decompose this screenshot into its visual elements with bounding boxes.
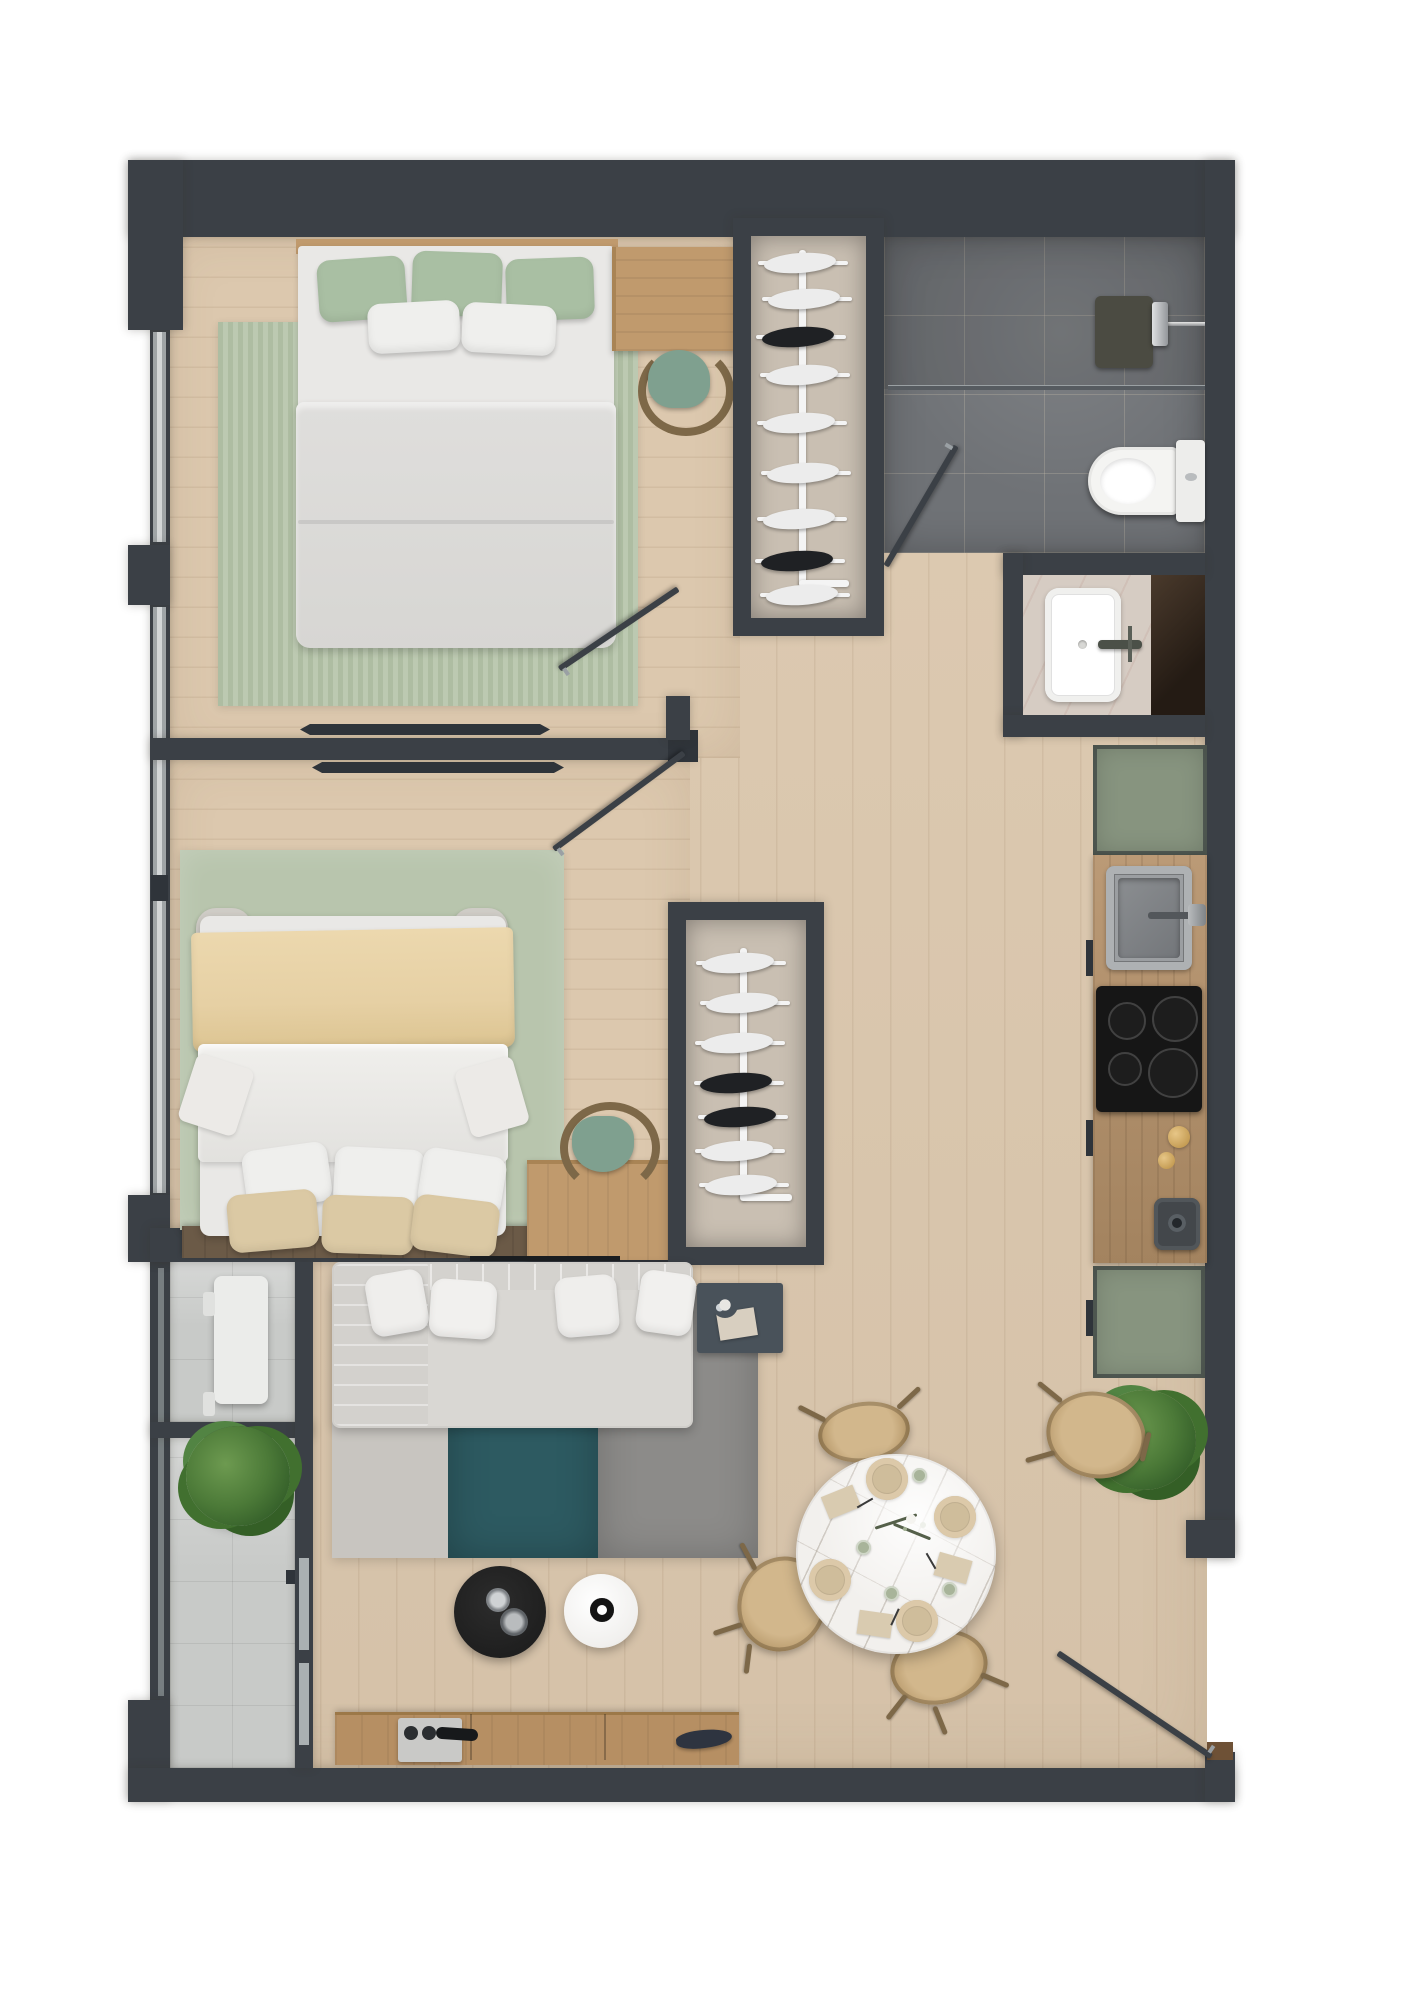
plate-setting <box>934 1496 976 1538</box>
green-cup <box>942 1582 957 1597</box>
bedrooms-divider-wall <box>150 738 695 760</box>
vanity-left-wall <box>1003 553 1023 737</box>
utility-closet-dark <box>1151 575 1205 715</box>
vanity-faucet-handle <box>1128 626 1132 662</box>
closet2-hanger-dark <box>698 1106 788 1128</box>
cabinet-handle <box>1086 940 1093 976</box>
balcony-potted-plant <box>186 1426 290 1526</box>
bed2-pillow-beige-3 <box>409 1193 501 1259</box>
balcony-railing-glass <box>158 1268 164 1696</box>
coffee-table-black <box>454 1566 546 1658</box>
kitchen-cabinet-green-lower <box>1093 1266 1205 1378</box>
bedroom2-window-b <box>153 901 166 1193</box>
closet2-hanger <box>699 1174 789 1196</box>
kitchen-gold-jar-1 <box>1168 1126 1190 1148</box>
wall-junction-left-1 <box>128 545 170 605</box>
top-wall <box>128 160 1235 237</box>
cabinet-handle <box>1086 1120 1093 1156</box>
closet1-hanger <box>757 508 847 530</box>
console-audio-knob <box>422 1726 436 1740</box>
sliding-door-panel-bedroom2 <box>312 762 564 773</box>
coffee-table-black-decor <box>486 1588 510 1612</box>
toilet-bowl <box>1100 458 1156 504</box>
top-left-corner-block <box>128 160 183 330</box>
bed2-pillow-beige-2 <box>321 1194 415 1255</box>
entry-jamb-block <box>1186 1520 1235 1558</box>
balcony-door-glass <box>299 1558 309 1650</box>
vanity-top-wall <box>1003 553 1205 575</box>
closet2-hanger <box>695 1032 785 1054</box>
window-mullion <box>151 875 168 901</box>
plate-setting <box>809 1559 851 1601</box>
balcony-door-handle <box>286 1570 295 1584</box>
green-cup <box>912 1468 927 1483</box>
shower-glass-screen <box>888 386 1205 390</box>
bedroom2-chair-seat <box>572 1116 634 1172</box>
toilet-tank <box>1176 440 1205 522</box>
bed1-pillow-white-2 <box>461 302 557 357</box>
table-centerpiece-flowers <box>906 1514 916 1524</box>
green-cup <box>884 1586 899 1601</box>
bedroom1-chair-seat <box>648 350 710 408</box>
balcony-bench-seat <box>203 1292 215 1316</box>
bottom-wall <box>128 1768 1235 1802</box>
side-table-decor <box>712 1292 738 1318</box>
balcony-window-glass <box>299 1663 309 1745</box>
closet2-hanger <box>696 952 786 974</box>
sofa-pillow <box>363 1267 431 1338</box>
vanity-drain <box>1078 640 1087 649</box>
cabinet-handle <box>1086 1300 1093 1336</box>
bed2-blanket <box>191 927 515 1053</box>
closet1-hanger <box>762 288 852 310</box>
sliding-door-panel-bedroom1 <box>300 724 550 735</box>
kitchen-gold-jar-2 <box>1158 1152 1175 1169</box>
vanity-faucet <box>1098 640 1142 649</box>
kitchen-appliance-dial <box>1168 1214 1186 1232</box>
cooktop-burner <box>1152 996 1198 1042</box>
sofa-pillow <box>554 1273 621 1338</box>
napkin <box>856 1610 893 1638</box>
bedroom1-door-jamb <box>666 696 690 740</box>
green-cup <box>856 1540 871 1555</box>
kitchen-cabinet-green-upper <box>1093 745 1207 855</box>
cooktop-burner <box>1148 1048 1198 1098</box>
console-audio-knob <box>404 1726 418 1740</box>
closet1-hanger <box>761 462 851 484</box>
balcony-bench <box>214 1276 268 1404</box>
cooktop-burner <box>1108 1052 1142 1086</box>
toilet-flush-button <box>1185 473 1197 481</box>
closet2-hanger-dark <box>694 1072 784 1094</box>
floor-plan-canvas <box>0 0 1420 2000</box>
closet1-hanger <box>760 364 850 386</box>
sofa-pillow <box>634 1268 698 1337</box>
coffee-table-black-decor <box>500 1608 528 1636</box>
closet2-hanger <box>695 1140 785 1162</box>
plate-setting <box>866 1458 908 1500</box>
vanity-bottom-wall <box>1003 715 1205 737</box>
kitchen-faucet-base <box>1188 904 1206 926</box>
shower-shelf <box>1095 296 1153 368</box>
closet1-hanger-dark <box>756 326 846 348</box>
plate-setting <box>896 1600 938 1642</box>
coffee-table-white-decor <box>590 1598 614 1622</box>
right-wall <box>1205 160 1235 1558</box>
cooktop-burner <box>1108 1002 1146 1040</box>
bedroom1-window <box>153 332 166 542</box>
bedroom1-desk <box>612 247 742 351</box>
shower-head <box>1152 302 1168 346</box>
tv-wall-bar <box>470 1256 620 1261</box>
bed2-pillow-beige-1 <box>226 1188 321 1254</box>
balcony-bench-seat <box>203 1392 215 1416</box>
closet1-hanger-dark <box>755 550 845 572</box>
sofa-pillow <box>428 1278 498 1340</box>
cooktop <box>1096 986 1202 1112</box>
console-seam <box>604 1714 606 1760</box>
bed1-pillow-white-1 <box>367 300 461 355</box>
bed1-duvet <box>296 402 616 648</box>
closet2-hanger <box>700 992 790 1014</box>
closet1-hanger <box>760 584 850 606</box>
console-audio-device <box>398 1718 462 1762</box>
closet1-hanger <box>757 412 847 434</box>
bed1-duvet-fold <box>298 520 614 524</box>
closet1-hanger <box>758 252 848 274</box>
